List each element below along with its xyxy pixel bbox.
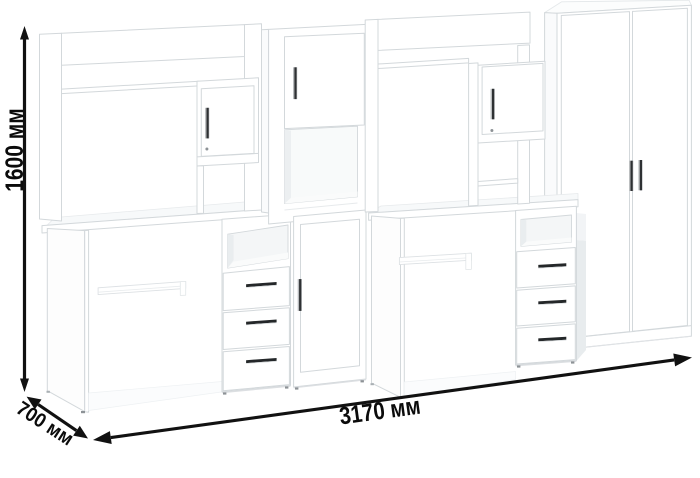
svg-text:1600 мм: 1600 мм — [0, 108, 28, 192]
